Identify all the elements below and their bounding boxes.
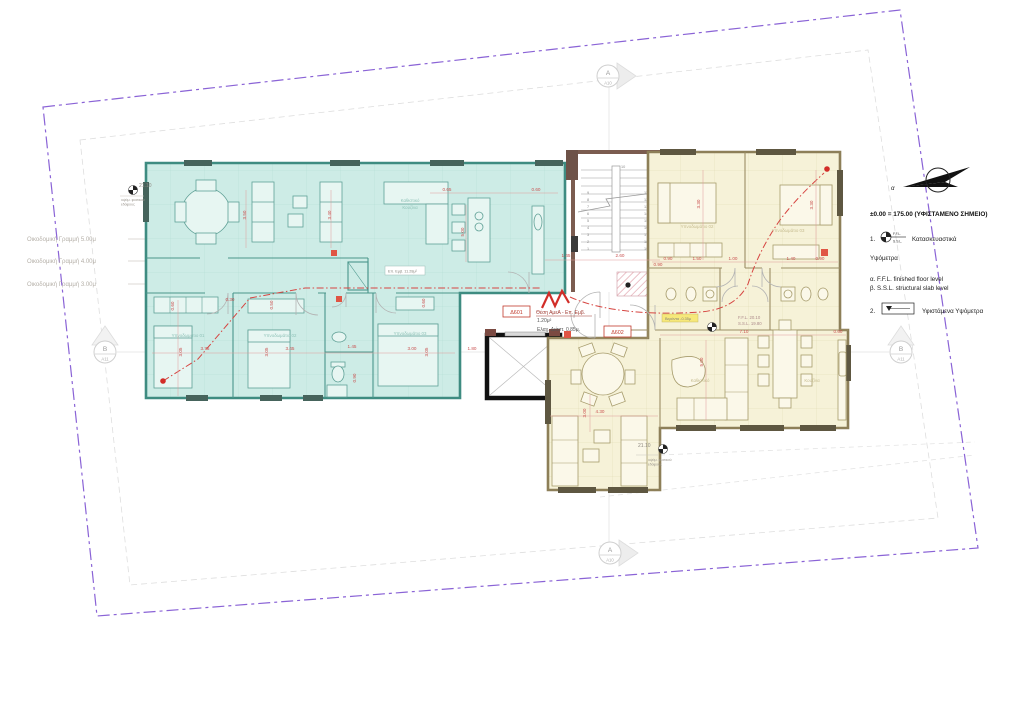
stair-number: 4 bbox=[587, 226, 589, 230]
marker-letter: B bbox=[103, 346, 107, 353]
legend-note: β. S.S.L. structural slab level bbox=[870, 285, 949, 292]
dim-label: 5.00 bbox=[460, 227, 465, 236]
stool bbox=[452, 240, 465, 251]
dim-label: 0.60 bbox=[834, 329, 843, 334]
room-label: Υπνοδωμάτιο 03 bbox=[772, 228, 805, 233]
stair-number: 5 bbox=[587, 219, 589, 223]
sink bbox=[839, 352, 846, 376]
level-sub: υψόμ. φυσικού bbox=[648, 458, 672, 462]
window bbox=[186, 395, 208, 401]
section-marker-a-bottom: A A10 bbox=[599, 540, 638, 566]
chair bbox=[175, 202, 186, 222]
toilet bbox=[686, 287, 696, 301]
legend-item-label: Υφιστάμενα Υψόμετρα bbox=[922, 308, 984, 315]
chair bbox=[758, 374, 769, 386]
north-label: α bbox=[891, 185, 895, 192]
amea-note: Ελαχ. Διάστ. 0.85μ. bbox=[537, 326, 580, 333]
exit-marker bbox=[821, 249, 828, 256]
dim-label: 1.00 bbox=[729, 256, 738, 261]
dim-label: 0.60 bbox=[170, 301, 175, 310]
window bbox=[330, 160, 360, 166]
stair-number: 7 bbox=[587, 205, 589, 209]
marker-ref: A11 bbox=[897, 357, 905, 362]
dim-label: 3.40 bbox=[327, 210, 332, 219]
window bbox=[430, 160, 464, 166]
window bbox=[837, 170, 843, 216]
stair-number: 1 bbox=[587, 247, 589, 251]
stair-core: 1 2 3 4 5 6 7 8 9 10 11 12 13 14 15 16 1… bbox=[566, 150, 658, 318]
legend-item-label: Κατασκευαστικά bbox=[912, 236, 957, 243]
level-value: 21.10 bbox=[638, 443, 651, 449]
level-sub: εδάφους bbox=[121, 203, 135, 207]
sink bbox=[534, 214, 542, 230]
chair bbox=[196, 180, 216, 191]
ssl-abbr: S.S.L. bbox=[893, 240, 902, 244]
level-sub: υψόμ. φυσικού bbox=[121, 198, 145, 202]
room-label: Υπνοδωμάτιο 02 bbox=[681, 224, 714, 229]
window bbox=[260, 395, 282, 401]
stair-number: 10 bbox=[621, 165, 625, 169]
wardrobe bbox=[396, 297, 434, 310]
dim-label: 1.40 bbox=[787, 256, 796, 261]
room-label: Υπνοδωμάτιο 02 bbox=[264, 333, 297, 338]
exit-marker bbox=[336, 296, 342, 302]
legend-item-number: 1. bbox=[870, 236, 875, 243]
floor-plan-sheet: Οικοδομική Γραμμή 5.00μ Οικοδομική Γραμμ… bbox=[0, 0, 1024, 724]
door-arc bbox=[571, 314, 595, 338]
pillow bbox=[820, 185, 832, 225]
window bbox=[303, 395, 323, 401]
washing-machine-drum bbox=[706, 290, 714, 298]
dim-label: 0.90 bbox=[654, 262, 663, 267]
dining-table bbox=[182, 188, 230, 236]
dim-label: 0.90 bbox=[664, 256, 673, 261]
chair bbox=[571, 370, 581, 384]
legend-item-label: Υψόμετρα bbox=[870, 255, 898, 262]
marker-ref: A10 bbox=[606, 558, 614, 563]
dim-label: 3.30 bbox=[696, 199, 701, 208]
toilet bbox=[332, 366, 344, 382]
grading-line bbox=[660, 442, 975, 455]
toilet bbox=[801, 287, 811, 301]
dim-label: 3.50 bbox=[242, 210, 247, 219]
room-label: Κουζίνα bbox=[402, 205, 418, 210]
chair bbox=[196, 233, 216, 244]
dim-label: 0.50 bbox=[269, 300, 274, 309]
sofa bbox=[252, 182, 274, 242]
level-sub: εδάφους bbox=[648, 463, 662, 467]
dim-label: 1.45 bbox=[562, 253, 571, 258]
room-label: Καθιστικό bbox=[401, 198, 420, 203]
dim-label: 4.30 bbox=[596, 409, 605, 414]
amea-note: Θέση ΑμεΑ - Επ. Εμβ. bbox=[536, 309, 585, 316]
column bbox=[566, 150, 578, 180]
room-label: Κουζίνα bbox=[804, 378, 820, 383]
shower bbox=[327, 385, 347, 397]
window bbox=[660, 149, 696, 155]
dim-label: 0.60 bbox=[532, 187, 541, 192]
dim-label: 0.30 bbox=[226, 297, 235, 302]
legend-title: ±0.00 = 175.00 (ΥΦΙΣΤΑΜΕΝΟ ΣΗΜΕΙΟ) bbox=[870, 211, 987, 218]
room-label: Υπνοδωμάτιο 01 bbox=[172, 333, 205, 338]
ffl-value: F.F.L. 20.10 bbox=[738, 315, 761, 320]
dim-label: 0.60 bbox=[421, 298, 426, 307]
window bbox=[545, 380, 551, 424]
legend: ±0.00 = 175.00 (ΥΦΙΣΤΑΜΕΝΟ ΣΗΜΕΙΟ) 1. F.… bbox=[870, 211, 987, 315]
side-table bbox=[594, 430, 610, 443]
chair bbox=[758, 336, 769, 348]
legend-note: α. F.F.L. finished floor level bbox=[870, 276, 943, 283]
stair-number: 9 bbox=[587, 191, 589, 195]
legend-item-number: 2. bbox=[870, 308, 875, 315]
room-label: Καθιστικό bbox=[691, 378, 710, 383]
window bbox=[740, 425, 784, 431]
stair-number: 6 bbox=[587, 212, 589, 216]
round-table bbox=[582, 353, 624, 395]
basin bbox=[332, 332, 346, 342]
building-line-labels: Οικοδομική Γραμμή 5.00μ Οικοδομική Γραμμ… bbox=[27, 236, 152, 288]
dim-label: 3.00 bbox=[582, 408, 587, 417]
chair bbox=[625, 370, 635, 384]
window bbox=[800, 425, 836, 431]
amea-note: 1.20μ² bbox=[537, 318, 552, 324]
hob bbox=[475, 223, 483, 231]
dim-label: 3.05 bbox=[264, 347, 269, 356]
window bbox=[558, 487, 596, 493]
dim-label: 0.90 bbox=[352, 373, 357, 382]
l-sofa bbox=[725, 338, 748, 420]
dim-label: 3.00 bbox=[408, 346, 417, 351]
dim-label: 3.45 bbox=[286, 346, 295, 351]
section-marker-b-right: B A11 bbox=[888, 326, 914, 363]
exit-marker bbox=[331, 250, 337, 256]
l-sofa bbox=[426, 204, 448, 244]
column bbox=[485, 329, 496, 336]
pillow bbox=[658, 183, 670, 223]
dining-table bbox=[773, 330, 797, 398]
floor-plan-svg: Οικοδομική Γραμμή 5.00μ Οικοδομική Γραμμ… bbox=[0, 0, 1024, 724]
dim-label: 7.10 bbox=[740, 329, 749, 334]
north-arrow: α bbox=[891, 167, 970, 192]
room-label: Υπνοδωμάτιο 03 bbox=[394, 331, 427, 336]
stair-number: 2 bbox=[587, 240, 589, 244]
hob bbox=[475, 212, 483, 220]
stair-number: 8 bbox=[587, 198, 589, 202]
dim-label: 2.60 bbox=[616, 253, 625, 258]
chair bbox=[801, 336, 812, 348]
chair bbox=[801, 355, 812, 367]
dim-label: 0.65 bbox=[443, 187, 452, 192]
marker-arrow bbox=[617, 63, 636, 89]
window bbox=[535, 160, 563, 166]
amea-point bbox=[625, 282, 630, 287]
marker-arrow bbox=[619, 540, 638, 566]
chair bbox=[758, 355, 769, 367]
chair bbox=[779, 320, 791, 330]
dim-label: 5.00 bbox=[699, 357, 704, 366]
window bbox=[676, 425, 716, 431]
wardrobe bbox=[773, 245, 819, 259]
coffee-table bbox=[293, 196, 307, 208]
stair-stringer bbox=[612, 166, 620, 252]
amea-waiting-area bbox=[617, 272, 650, 296]
level-value: 21.10 bbox=[139, 183, 152, 189]
building-line-label: Οικοδομική Γραμμή 4.00μ bbox=[27, 258, 97, 265]
dim-label: 3.30 bbox=[809, 200, 814, 209]
escape-start-dot bbox=[824, 166, 830, 172]
marker-letter: B bbox=[899, 346, 903, 353]
area-label: Επ. Εμβ. 11.28μ² bbox=[388, 270, 418, 274]
l-sofa bbox=[677, 398, 727, 420]
existing-level-symbol bbox=[882, 303, 914, 314]
marker-letter: A bbox=[606, 70, 611, 77]
window bbox=[608, 487, 648, 493]
basin bbox=[818, 288, 828, 300]
side-table bbox=[583, 449, 599, 462]
marker-letter: A bbox=[608, 547, 613, 554]
building-line-label: Οικοδομική Γραμμή 3.00μ bbox=[27, 281, 97, 288]
sofa bbox=[552, 416, 578, 486]
dim-label: 3.75 bbox=[201, 346, 210, 351]
dim-label: 1.50 bbox=[693, 256, 702, 261]
washing-machine-drum bbox=[784, 290, 792, 298]
dim-label: 3.05 bbox=[424, 347, 429, 356]
door-tag: Δ601 bbox=[510, 310, 523, 316]
dim-label: 1.80 bbox=[468, 346, 477, 351]
section-marker-a-top: A A10 bbox=[597, 63, 636, 89]
dim-label: 3.05 bbox=[178, 347, 183, 356]
level-marker-living bbox=[708, 323, 717, 332]
escape-start-dot bbox=[160, 378, 166, 384]
marker-ref: A11 bbox=[101, 357, 109, 362]
window bbox=[756, 149, 796, 155]
stool bbox=[452, 204, 465, 215]
section-marker-b-left: B A11 bbox=[92, 326, 118, 363]
ssl-value: S.S.L. 19.80 bbox=[738, 321, 762, 326]
dim-label: 0.90 bbox=[816, 256, 825, 261]
chair bbox=[779, 398, 791, 408]
marker-ref: A10 bbox=[604, 81, 612, 86]
basin bbox=[666, 288, 676, 300]
column bbox=[571, 236, 578, 252]
terrace-label: Βεράντα -0.35μ bbox=[665, 317, 691, 321]
ffl-abbr: F.F.L. bbox=[893, 232, 901, 236]
coffee-table bbox=[288, 214, 303, 227]
stair-number: 3 bbox=[587, 233, 589, 237]
chair bbox=[228, 202, 239, 222]
window bbox=[184, 160, 212, 166]
building-line-label: Οικοδομική Γραμμή 5.00μ bbox=[27, 236, 97, 243]
sofa bbox=[621, 416, 647, 486]
door-tag: Δ602 bbox=[611, 330, 624, 336]
dim-label: 1.45 bbox=[348, 344, 357, 349]
ffl-ssl-symbol: F.F.L. S.S.L. bbox=[881, 232, 906, 244]
